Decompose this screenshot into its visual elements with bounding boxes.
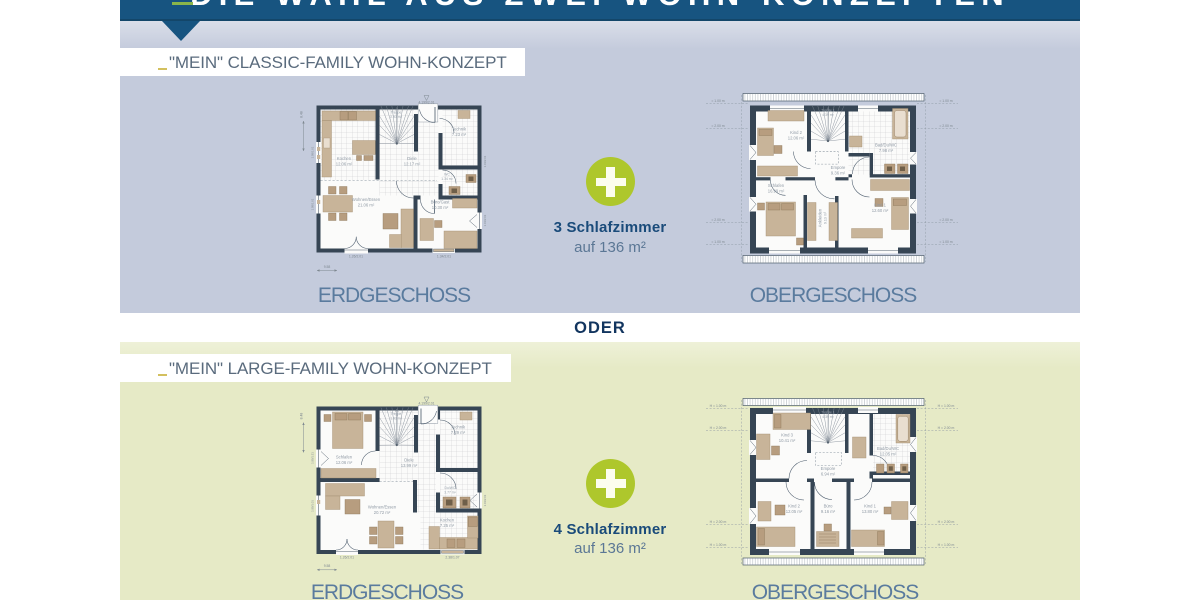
svg-text:Kind 2: Kind 2	[790, 130, 803, 135]
svg-text:1.99/1.01: 1.99/1.01	[311, 500, 315, 512]
svg-text:12.05 m²: 12.05 m²	[786, 509, 803, 514]
svg-text:4.39 m²: 4.39 m²	[822, 415, 834, 419]
svg-text:16.99 m²: 16.99 m²	[768, 189, 785, 194]
svg-text:10.41 m²: 10.41 m²	[779, 438, 796, 443]
svg-text:1.26/2.01: 1.26/2.01	[349, 255, 363, 259]
svg-text:1.99/1.51: 1.99/1.51	[311, 452, 315, 464]
svg-text:Kind 3: Kind 3	[781, 433, 794, 438]
svg-text:= 1.00 m: = 1.00 m	[711, 240, 724, 244]
svg-text:= 2.00 m: = 2.00 m	[711, 124, 724, 128]
svg-text:Technik: Technik	[452, 127, 467, 132]
svg-text:7.25 m²: 7.25 m²	[440, 523, 455, 528]
svg-text:Kind 2: Kind 2	[788, 504, 801, 509]
svg-text:H = 2.00 m: H = 2.00 m	[710, 520, 727, 524]
svg-text:Empore: Empore	[831, 165, 846, 170]
svg-text:12.05 m²: 12.05 m²	[880, 452, 897, 457]
svg-text:7.29 m²: 7.29 m²	[451, 430, 466, 435]
svg-text:= 1.00 m: = 1.00 m	[711, 99, 724, 103]
svg-text:8.48: 8.48	[300, 413, 304, 420]
svg-text:10.30 m²: 10.30 m²	[432, 205, 449, 210]
svg-text:= 2.00 m: = 2.00 m	[939, 218, 952, 222]
svg-text:1.34/2.01: 1.34/2.01	[437, 255, 451, 259]
svg-text:1.99/1.01: 1.99/1.01	[311, 146, 315, 158]
svg-text:= 1.00 m: = 1.00 m	[939, 99, 952, 103]
svg-text:Büro/Gast: Büro/Gast	[431, 200, 451, 205]
svg-text:Diele: Diele	[407, 156, 417, 161]
svg-text:H = 2.00 m: H = 2.00 m	[938, 426, 955, 430]
svg-text:Kind 1: Kind 1	[874, 203, 887, 208]
svg-text:Schlafen: Schlafen	[336, 455, 353, 460]
svg-text:12.06 m²: 12.06 m²	[788, 136, 805, 141]
svg-text:Bad/Du/WC: Bad/Du/WC	[875, 143, 897, 148]
svg-text:1.99/1.01: 1.99/1.01	[311, 198, 315, 210]
svg-text:H = 1.00 m: H = 1.00 m	[710, 543, 727, 547]
svg-text:Kochen: Kochen	[440, 518, 455, 523]
svg-text:H = 1.00 m: H = 1.00 m	[938, 404, 955, 408]
svg-text:Wohnen/Essen: Wohnen/Essen	[368, 505, 397, 510]
svg-text:Empore: Empore	[821, 466, 836, 471]
svg-text:2.38/1.07: 2.38/1.07	[445, 556, 459, 560]
svg-text:Kind 1: Kind 1	[864, 504, 877, 509]
svg-text:4.199/2.01: 4.199/2.01	[418, 101, 434, 105]
svg-text:12.06 m²: 12.06 m²	[336, 460, 353, 465]
svg-text:6.94 m²: 6.94 m²	[821, 472, 836, 477]
svg-text:9.58: 9.58	[324, 265, 331, 269]
svg-text:1.34 m²: 1.34 m²	[441, 177, 453, 181]
svg-text:= 2.00 m: = 2.00 m	[711, 218, 724, 222]
svg-text:12.17 m²: 12.17 m²	[404, 162, 421, 167]
svg-text:1.26/2.01: 1.26/2.01	[340, 556, 354, 560]
svg-text:Ankleiden: Ankleiden	[818, 208, 823, 227]
svg-text:Technik: Technik	[451, 425, 466, 430]
svg-text:Schlafen: Schlafen	[768, 183, 785, 188]
svg-text:12.60 m²: 12.60 m²	[872, 208, 889, 213]
svg-text:1.01/2.01: 1.01/2.01	[483, 214, 487, 226]
svg-text:2.93 m²: 2.93 m²	[390, 115, 402, 119]
svg-text:1.93 m²: 1.93 m²	[390, 416, 402, 420]
svg-text:= 1.00 m: = 1.00 m	[939, 240, 952, 244]
svg-text:Büro: Büro	[824, 504, 834, 509]
svg-text:= 2.00 m: = 2.00 m	[939, 124, 952, 128]
svg-text:3.77 m²: 3.77 m²	[444, 490, 456, 494]
svg-text:7.23 m²: 7.23 m²	[452, 132, 467, 137]
svg-text:13.99 m²: 13.99 m²	[401, 463, 418, 468]
svg-text:H = 1.00 m: H = 1.00 m	[710, 404, 727, 408]
svg-text:H = 2.00 m: H = 2.00 m	[938, 520, 955, 524]
svg-text:12.06 m²: 12.06 m²	[336, 162, 353, 167]
svg-text:9.13 m²: 9.13 m²	[824, 211, 828, 224]
svg-text:21.06 m²: 21.06 m²	[358, 203, 375, 208]
svg-text:H = 1.00 m: H = 1.00 m	[938, 543, 955, 547]
svg-text:9.58: 9.58	[324, 564, 331, 568]
svg-text:4.39 m²: 4.39 m²	[822, 113, 834, 117]
svg-text:Diele: Diele	[404, 458, 414, 463]
svg-text:13.80 m²: 13.80 m²	[862, 509, 879, 514]
svg-text:7.98 m²: 7.98 m²	[879, 148, 894, 153]
svg-text:1.01/2.01: 1.01/2.01	[483, 494, 487, 506]
svg-text:H = 2.00 m: H = 2.00 m	[710, 426, 727, 430]
svg-text:Bad/Du/WC: Bad/Du/WC	[877, 446, 899, 451]
svg-text:1.01/2.01: 1.01/2.01	[483, 155, 487, 167]
svg-text:20.72 m²: 20.72 m²	[374, 510, 391, 515]
svg-text:9.36 m²: 9.36 m²	[831, 171, 846, 176]
svg-text:8.48: 8.48	[300, 111, 304, 118]
svg-text:Wohnen/Essen: Wohnen/Essen	[352, 197, 381, 202]
svg-text:Kochen: Kochen	[337, 156, 352, 161]
svg-text:9.16 m²: 9.16 m²	[821, 509, 836, 514]
